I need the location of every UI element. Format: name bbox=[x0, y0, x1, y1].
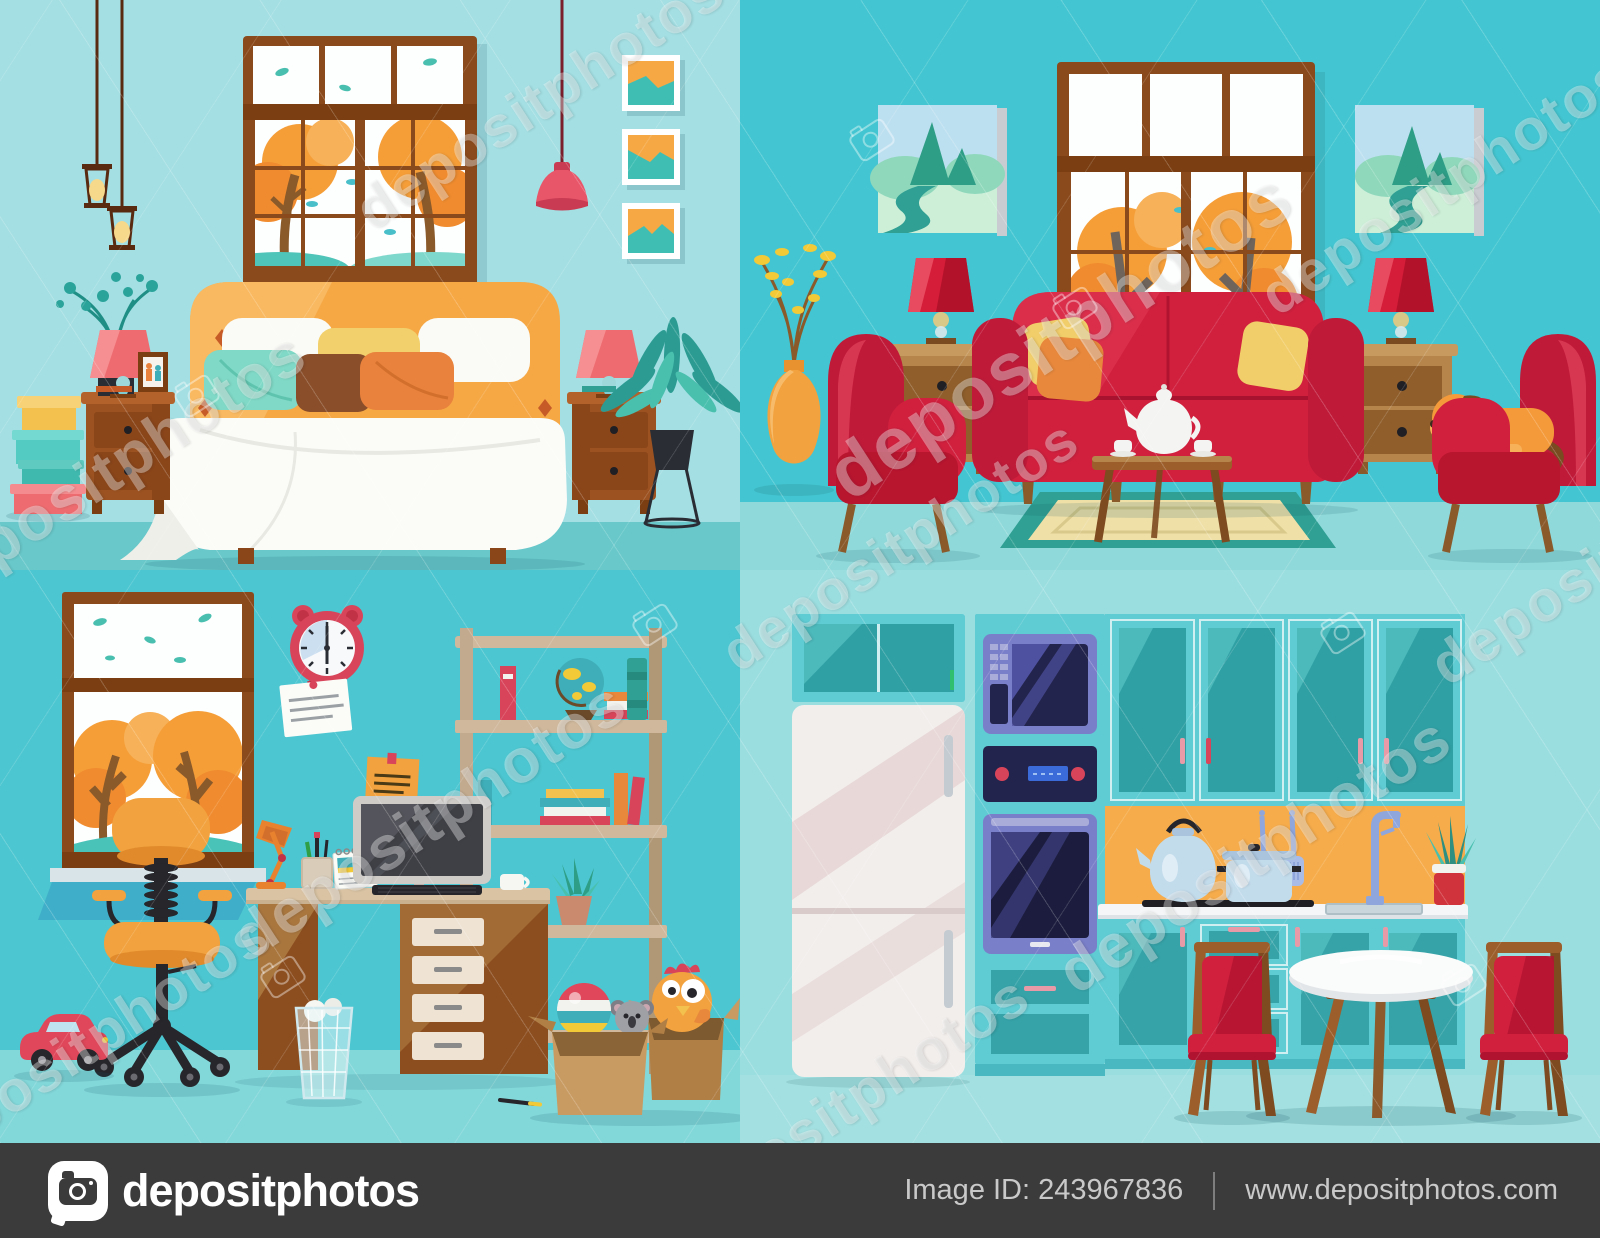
lower-cabinet-door bbox=[1119, 927, 1187, 1045]
cooking-pot bbox=[1217, 844, 1301, 902]
pillow-orange bbox=[360, 352, 454, 410]
upper-cabinet-door bbox=[1111, 620, 1194, 800]
living-room-scene bbox=[740, 0, 1600, 570]
microwave bbox=[983, 634, 1097, 734]
upper-cabinets bbox=[1105, 614, 1465, 806]
upper-cabinet-door bbox=[1200, 620, 1283, 800]
picture-frame bbox=[622, 203, 685, 264]
camera-icon bbox=[59, 1178, 97, 1205]
sofa-pillow-yellow-right bbox=[1235, 319, 1310, 393]
upper-cabinet-door bbox=[1378, 620, 1461, 800]
desk bbox=[235, 888, 565, 1090]
upper-cabinet-door bbox=[1289, 620, 1372, 800]
computer-monitor bbox=[353, 796, 491, 892]
website-text: www.depositphotos.com bbox=[1245, 1174, 1558, 1207]
kids-room-scene bbox=[0, 570, 740, 1143]
bedroom-scene bbox=[0, 0, 740, 570]
sofa-arm-left bbox=[972, 318, 1028, 482]
wall-frames bbox=[622, 55, 685, 264]
depositphotos-logo-icon bbox=[48, 1161, 108, 1221]
landscape-painting-right bbox=[1355, 105, 1484, 236]
sofa-pillow-orange-left bbox=[1036, 335, 1105, 402]
kitchen-scene bbox=[740, 570, 1600, 1143]
picture-frame bbox=[622, 129, 685, 190]
white-note bbox=[279, 678, 352, 738]
oven bbox=[983, 814, 1097, 954]
sofa-arm-right bbox=[1308, 318, 1364, 482]
fridge bbox=[786, 705, 970, 1088]
landscape-painting-left bbox=[870, 105, 1007, 236]
image-id-text: Image ID: 243967836 bbox=[904, 1174, 1183, 1207]
pillow-teal bbox=[204, 350, 302, 410]
divider bbox=[1213, 1172, 1215, 1210]
cooktop bbox=[1142, 900, 1314, 907]
stock-image-preview: depositphotos depositphotos depositphoto… bbox=[0, 0, 1600, 1238]
beach-ball bbox=[557, 983, 611, 1037]
footer-bar: depositphotos Image ID: 243967836 www.de… bbox=[0, 1143, 1600, 1238]
brand-wordmark: depositphotos bbox=[122, 1165, 419, 1217]
appliance-column bbox=[975, 614, 1105, 1076]
oven-control-panel bbox=[983, 746, 1097, 802]
image-meta: Image ID: 243967836 www.depositphotos.co… bbox=[904, 1172, 1558, 1210]
picture-frame bbox=[622, 55, 685, 116]
cabinet-above-fridge bbox=[792, 614, 965, 702]
bedroom-window bbox=[210, 36, 517, 304]
keyboard bbox=[372, 885, 482, 895]
rug bbox=[1000, 492, 1336, 548]
photo-frame bbox=[138, 352, 168, 392]
